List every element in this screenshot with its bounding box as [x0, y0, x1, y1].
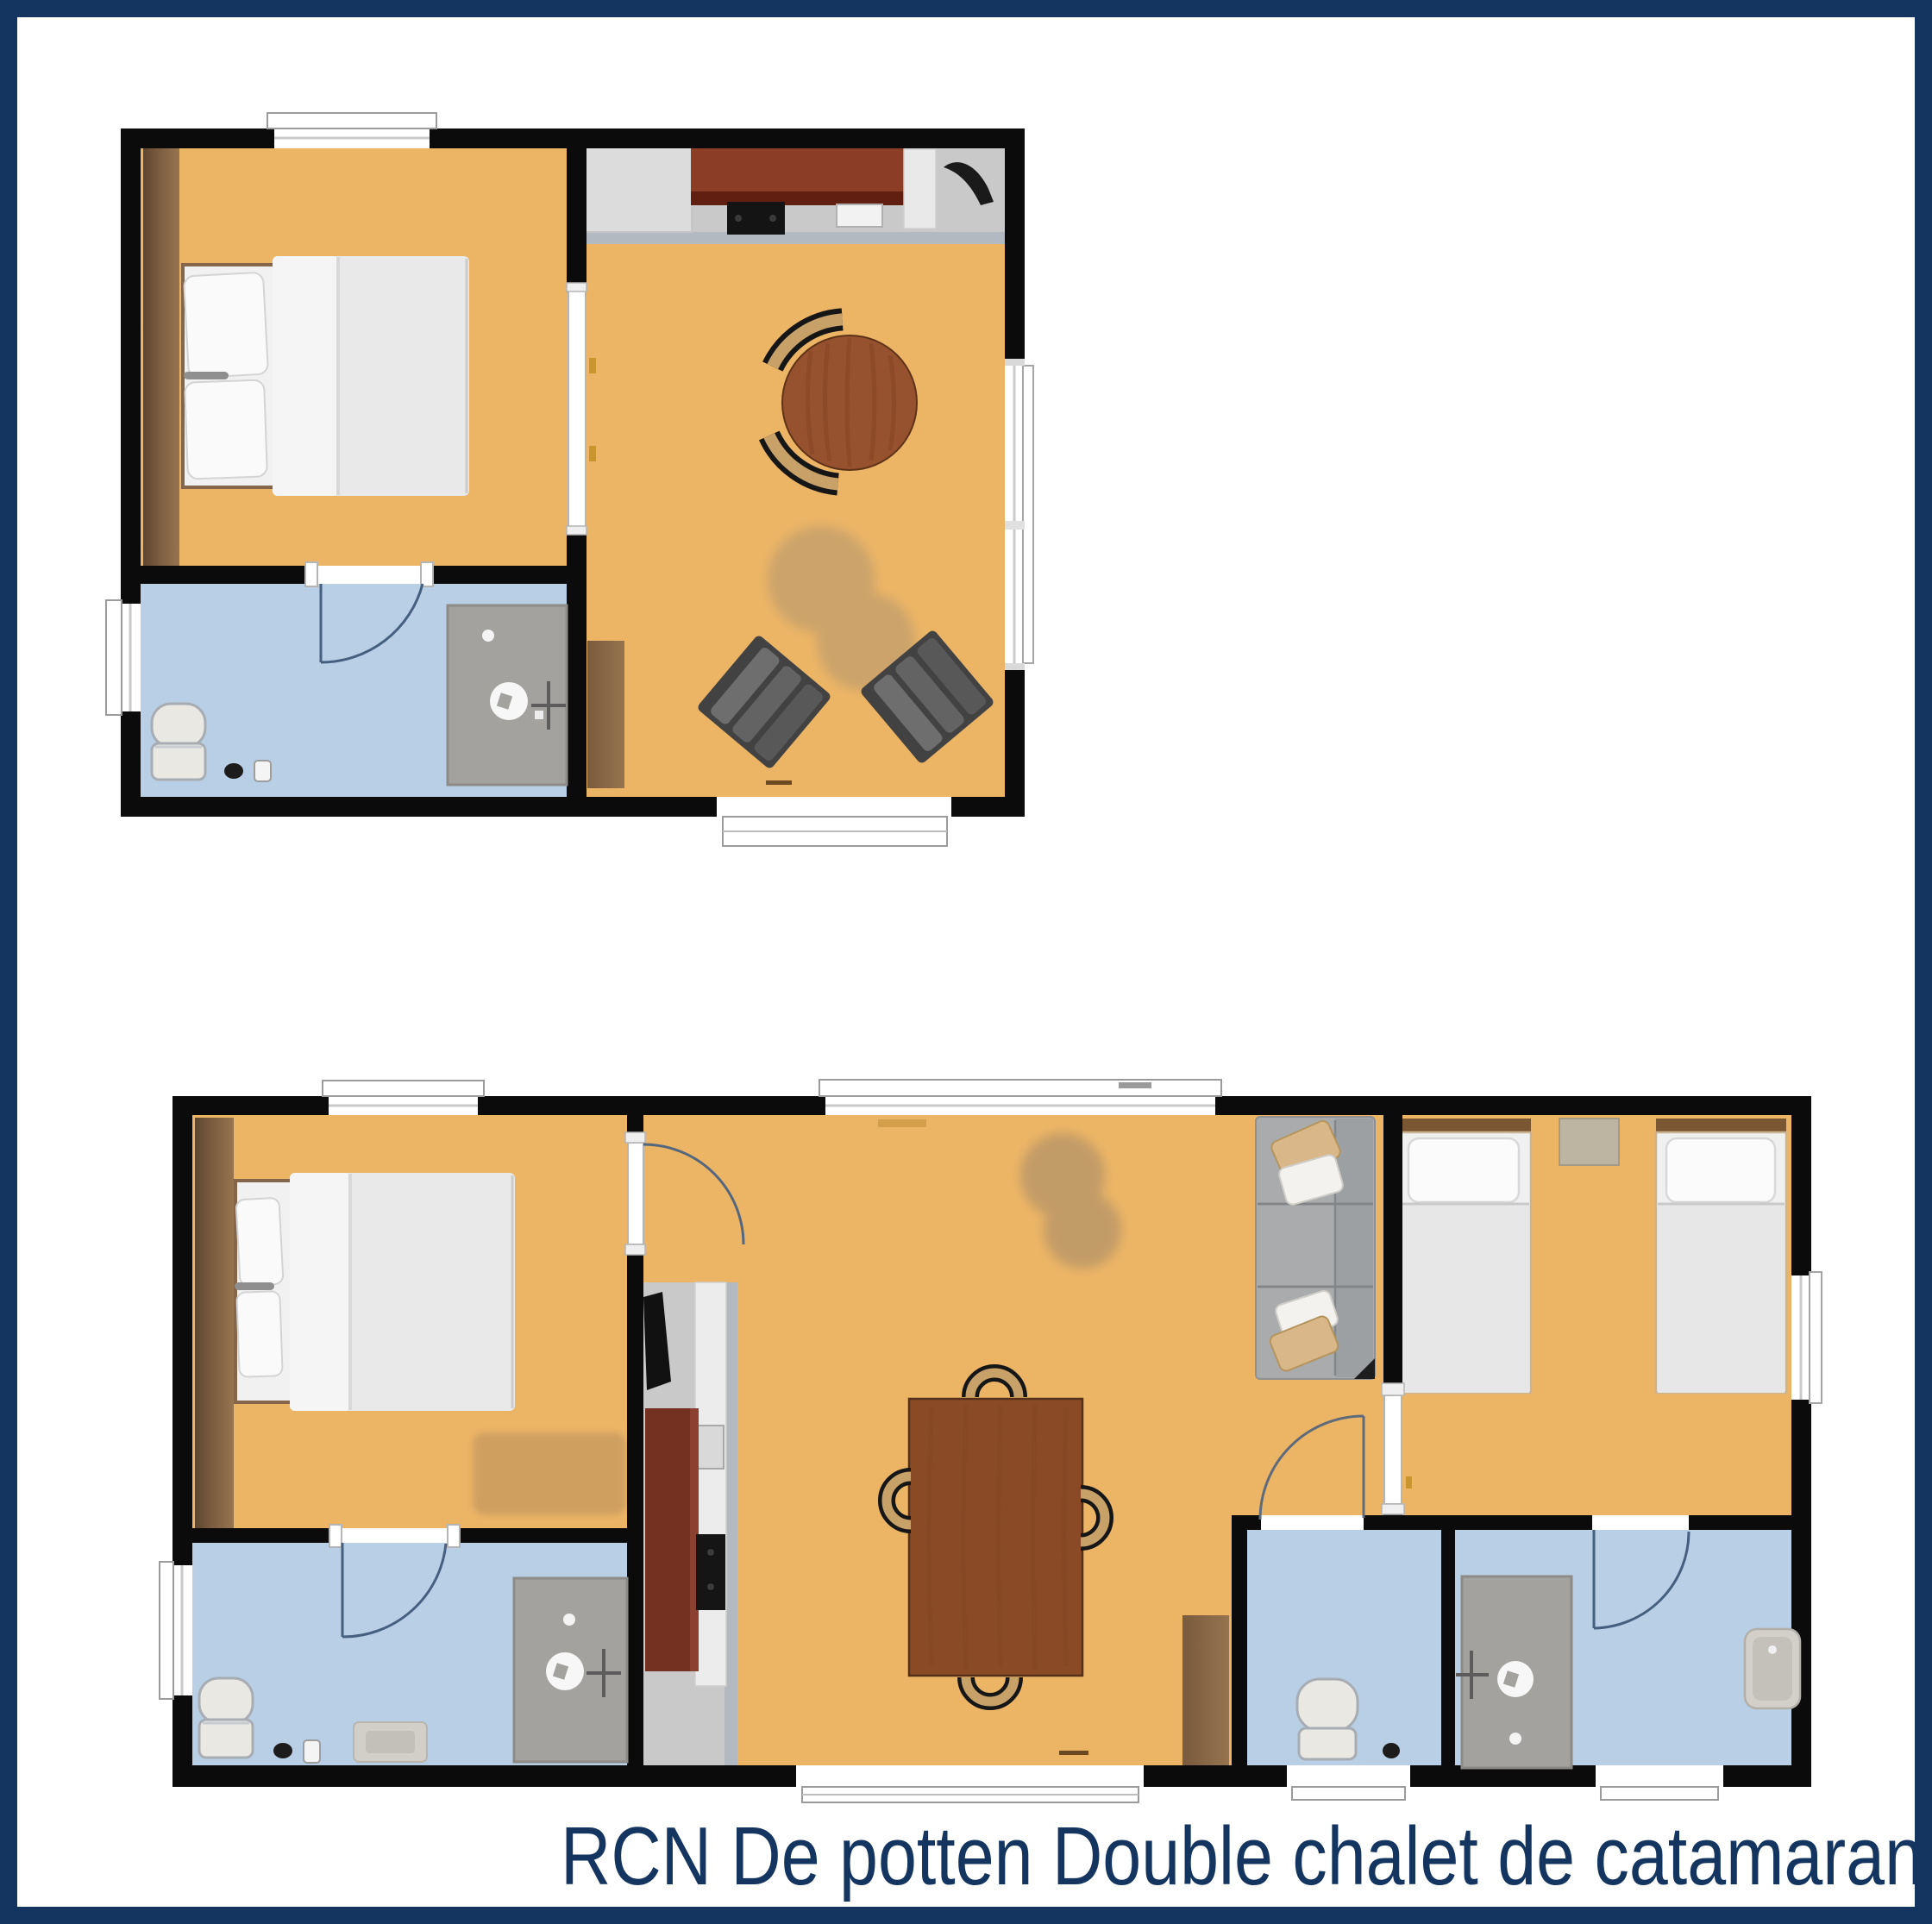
svg-text:RCN De potten Double chalet de: RCN De potten Double chalet de catamaran	[561, 1810, 1923, 1902]
